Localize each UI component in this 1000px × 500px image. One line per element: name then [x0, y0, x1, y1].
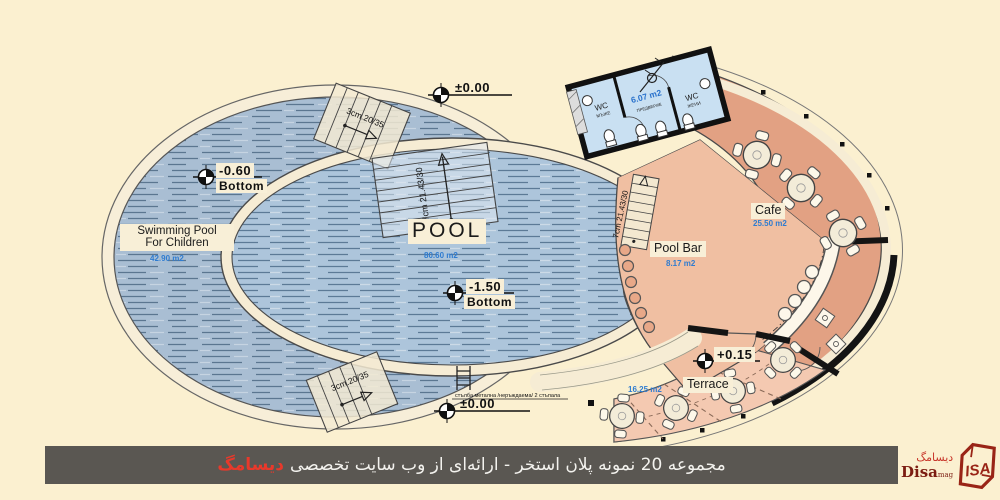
children-pool-area-value: 42.90 m2	[150, 254, 184, 263]
children-pool-label-line1: Swimming Pool	[124, 225, 230, 237]
disamag-logo-mark: ISA	[955, 437, 998, 495]
level-plus015: +0.15	[714, 347, 755, 362]
wc-block: WC МЪЖЕ 6.07 m2 ПРЕДВЕРИЕ WC ЖЕНИ	[568, 49, 728, 156]
level-zero-bottom: ±0.00	[460, 396, 495, 411]
disamag-logo: دیسامگ Disamag ISA	[901, 434, 998, 498]
caption-text: مجموعه 20 نمونه پلان استخر - ارائه‌ای از…	[290, 455, 726, 475]
disamag-logo-en: Disamag	[901, 465, 953, 480]
cafe-label: Cafe	[751, 203, 785, 219]
level-zero-top: ±0.00	[455, 80, 490, 95]
disamag-logo-fa: دیسامگ	[916, 452, 953, 463]
caption-banner: مجموعه 20 نمونه پلان استخر - ارائه‌ای از…	[45, 446, 898, 484]
level-minus150-bottom: Bottom	[464, 295, 515, 309]
terrace-label: Terrace	[683, 377, 733, 393]
pool-plan-page: 3cm.20/35 7cm 21.43/30 7cm 21.43/30 3cm.…	[0, 0, 1000, 500]
children-pool-label-line2: For Children	[124, 237, 230, 249]
disamag-logo-en-suffix: mag	[938, 471, 953, 479]
level-minus060: -0.60	[216, 163, 254, 178]
caption-highlight: دیسامگ	[217, 455, 284, 475]
children-pool-label: Swimming Pool For Children	[120, 224, 234, 251]
level-minus060-bottom: Bottom	[216, 179, 267, 193]
pool-area-value: 80.60 m2	[424, 251, 458, 260]
level-minus150: -1.50	[466, 279, 504, 294]
cafe-area-value: 25.50 m2	[753, 219, 787, 228]
disamag-logo-text: دیسامگ Disamag	[901, 452, 953, 480]
pool-bar-label: Pool Bar	[650, 241, 706, 257]
disamag-logo-en-main: Disa	[901, 463, 938, 481]
pool-label: POOL	[408, 219, 486, 244]
terrace-area-value: 16.25 m2	[628, 385, 662, 394]
pool-bar-area-value: 8.17 m2	[666, 259, 695, 268]
disamag-logo-mark-text: ISA	[964, 460, 991, 480]
